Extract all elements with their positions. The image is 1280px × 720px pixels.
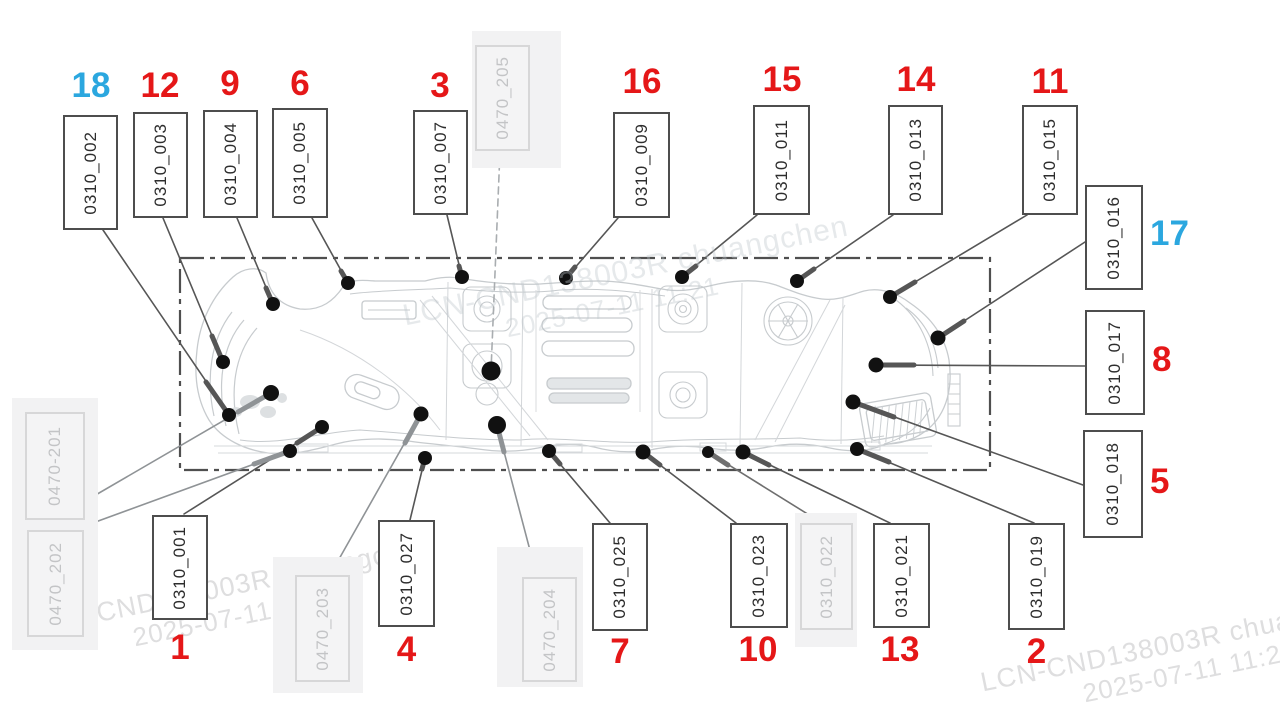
part-label-box-0310-019: 0310_019 bbox=[1008, 523, 1065, 630]
dot-9 bbox=[266, 297, 280, 311]
part-label-box-0310-002: 0310_002 bbox=[63, 115, 118, 230]
ghost-part-code: 0470_202 bbox=[46, 542, 66, 626]
dot-1 bbox=[315, 420, 329, 434]
callout-number-17: 17 bbox=[1150, 214, 1210, 254]
callout-number-10: 10 bbox=[718, 630, 798, 670]
part-code: 0310_005 bbox=[290, 121, 310, 205]
part-label-box-0310-004: 0310_004 bbox=[203, 110, 258, 218]
ghost-part-code: 0470_205 bbox=[493, 56, 513, 140]
hatched-plate bbox=[859, 392, 938, 448]
dot-0470-204 bbox=[488, 416, 506, 434]
callout-number-16: 16 bbox=[608, 62, 676, 102]
dot-10 bbox=[636, 445, 651, 460]
part-label-box-0310-011: 0310_011 bbox=[753, 105, 810, 215]
dot-6 bbox=[341, 276, 355, 290]
part-label-box-0310-023: 0310_023 bbox=[730, 523, 788, 628]
callout-number-11: 11 bbox=[1018, 62, 1082, 102]
part-code: 0310_021 bbox=[892, 534, 912, 618]
dot-2 bbox=[850, 442, 864, 456]
part-code: 0310_009 bbox=[632, 123, 652, 207]
dot-12 bbox=[216, 355, 230, 369]
part-code: 0310_019 bbox=[1027, 535, 1047, 619]
dot-18 bbox=[222, 408, 236, 422]
part-code: 0310_015 bbox=[1040, 118, 1060, 202]
ghost-part-code: 0470_203 bbox=[313, 587, 333, 671]
callout-number-7: 7 bbox=[592, 632, 648, 672]
ghost-label-box-0470-205: 0470_205 bbox=[475, 45, 530, 151]
callout-number-14: 14 bbox=[884, 60, 948, 100]
part-label-box-0310-017: 0310_017 bbox=[1085, 310, 1145, 415]
ghost-label-box-0470-204: 0470_204 bbox=[522, 577, 577, 682]
ghost-label-box-0470-203: 0470_203 bbox=[295, 575, 350, 682]
fan-wheel bbox=[764, 297, 812, 345]
dot-17 bbox=[931, 331, 946, 346]
callout-number-9: 9 bbox=[198, 64, 262, 104]
part-code: 0310_025 bbox=[610, 535, 630, 619]
part-code: 0310_003 bbox=[151, 123, 171, 207]
ghost-part-code: 0470_204 bbox=[540, 588, 560, 672]
callout-number-15: 15 bbox=[748, 60, 816, 100]
part-label-box-0310-003: 0310_003 bbox=[133, 112, 188, 218]
part-code: 0310_001 bbox=[170, 526, 190, 610]
dot-11 bbox=[883, 290, 897, 304]
part-code: 0310_016 bbox=[1104, 196, 1124, 280]
part-label-box-0310-027: 0310_027 bbox=[378, 520, 435, 627]
dot-0310-022 bbox=[702, 446, 714, 458]
callout-number-8: 8 bbox=[1152, 340, 1198, 380]
dot-7 bbox=[542, 444, 556, 458]
part-label-box-0310-021: 0310_021 bbox=[873, 523, 930, 628]
dot-0470-205 bbox=[482, 362, 501, 381]
ghost-label-box-0470-202: 0470_202 bbox=[27, 530, 84, 637]
ghost-label-box-0310-022: 0310_022 bbox=[800, 523, 853, 630]
callout-number-4: 4 bbox=[378, 630, 435, 670]
dot-0470-203 bbox=[414, 407, 429, 422]
dot-3 bbox=[455, 270, 469, 284]
dot-5 bbox=[846, 395, 861, 410]
dot-0470-201 bbox=[263, 385, 279, 401]
part-label-box-0310-005: 0310_005 bbox=[272, 108, 328, 218]
part-code: 0310_011 bbox=[772, 119, 792, 201]
part-label-box-0310-025: 0310_025 bbox=[592, 523, 648, 631]
part-label-box-0310-013: 0310_013 bbox=[888, 105, 943, 215]
part-code: 0310_017 bbox=[1105, 321, 1125, 405]
part-label-box-0310-009: 0310_009 bbox=[613, 112, 670, 218]
callout-number-18: 18 bbox=[60, 66, 122, 106]
callout-number-2: 2 bbox=[1008, 632, 1065, 672]
callout-number-12: 12 bbox=[128, 66, 192, 106]
part-code: 0310_027 bbox=[397, 532, 417, 616]
part-code: 0310_018 bbox=[1103, 442, 1123, 526]
dot-13 bbox=[736, 445, 751, 460]
callout-number-6: 6 bbox=[268, 64, 332, 104]
ghost-part-code: 0470-201 bbox=[45, 426, 65, 506]
right-end bbox=[884, 300, 960, 444]
part-code: 0310_013 bbox=[906, 118, 926, 202]
part-label-box-0310-001: 0310_001 bbox=[152, 515, 208, 620]
dot-4 bbox=[418, 451, 432, 465]
ghost-part-code: 0310_022 bbox=[817, 535, 837, 619]
part-code: 0310_023 bbox=[749, 534, 769, 618]
part-code: 0310_007 bbox=[431, 121, 451, 205]
part-label-box-0310-018: 0310_018 bbox=[1083, 430, 1143, 538]
part-code: 0310_004 bbox=[221, 122, 241, 206]
callout-number-1: 1 bbox=[140, 628, 220, 668]
ghost-label-box-0470-201: 0470-201 bbox=[25, 412, 85, 520]
callout-number-13: 13 bbox=[860, 630, 940, 670]
part-label-box-0310-015: 0310_015 bbox=[1022, 105, 1078, 215]
part-code: 0310_002 bbox=[81, 131, 101, 215]
part-label-box-0310-016: 0310_016 bbox=[1085, 185, 1143, 290]
part-label-box-0310-007: 0310_007 bbox=[413, 110, 468, 215]
callout-number-3: 3 bbox=[408, 66, 472, 106]
dot-0470-202 bbox=[283, 444, 297, 458]
callout-number-5: 5 bbox=[1150, 462, 1196, 502]
dot-8 bbox=[869, 358, 884, 373]
badge bbox=[342, 371, 403, 413]
diagram-page: LCN-CND138003R chuangchen 2025-07-11 11:… bbox=[0, 0, 1280, 720]
